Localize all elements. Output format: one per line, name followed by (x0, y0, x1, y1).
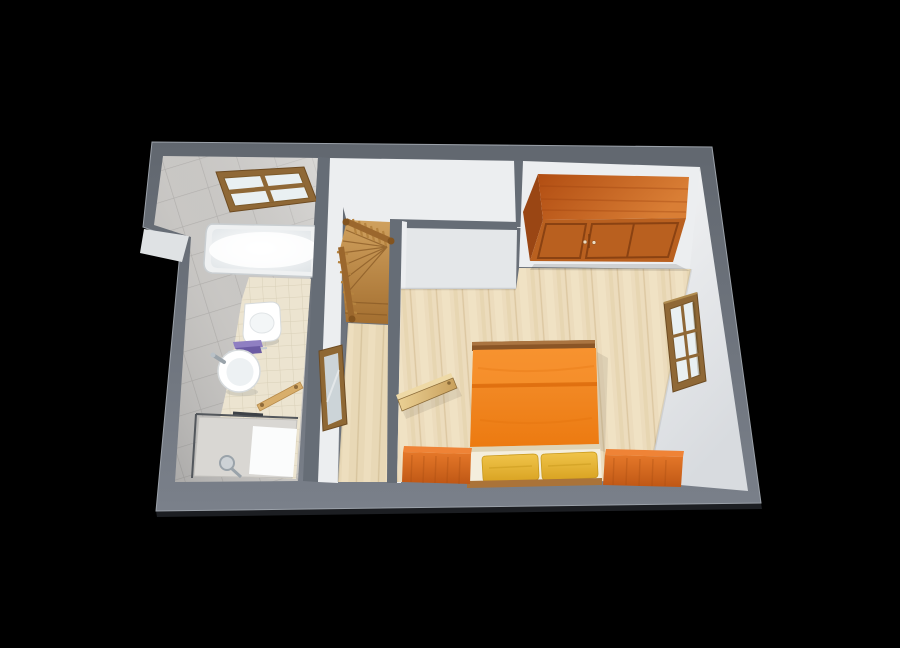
wardrobe (523, 174, 690, 271)
wardrobe-top (538, 174, 689, 220)
winder-staircase (337, 219, 395, 325)
wardrobe-shadow (530, 264, 690, 271)
newel-post (349, 316, 356, 323)
nightstand-left (402, 446, 472, 484)
door-knob (447, 381, 451, 385)
wardrobe-handle-right (592, 241, 596, 245)
wardrobe-handle-left (583, 240, 587, 244)
floorplan-3d-render (0, 0, 900, 648)
floorplan-stage (0, 0, 900, 648)
newel-post (388, 238, 395, 245)
shower (192, 413, 298, 478)
closet-wall-face-bedroom (401, 228, 517, 289)
leaning-wall-mirror (319, 345, 347, 431)
top-wall-inner-face-hall (330, 158, 524, 228)
toilet (243, 302, 281, 346)
bathtub (204, 224, 319, 277)
newel-post (343, 219, 350, 226)
shower-glass-handle (233, 413, 263, 415)
double-bed (467, 340, 608, 488)
bed-duvet-flap (472, 348, 597, 385)
nightstand-right (603, 449, 684, 487)
shower-door-panel (249, 426, 297, 477)
